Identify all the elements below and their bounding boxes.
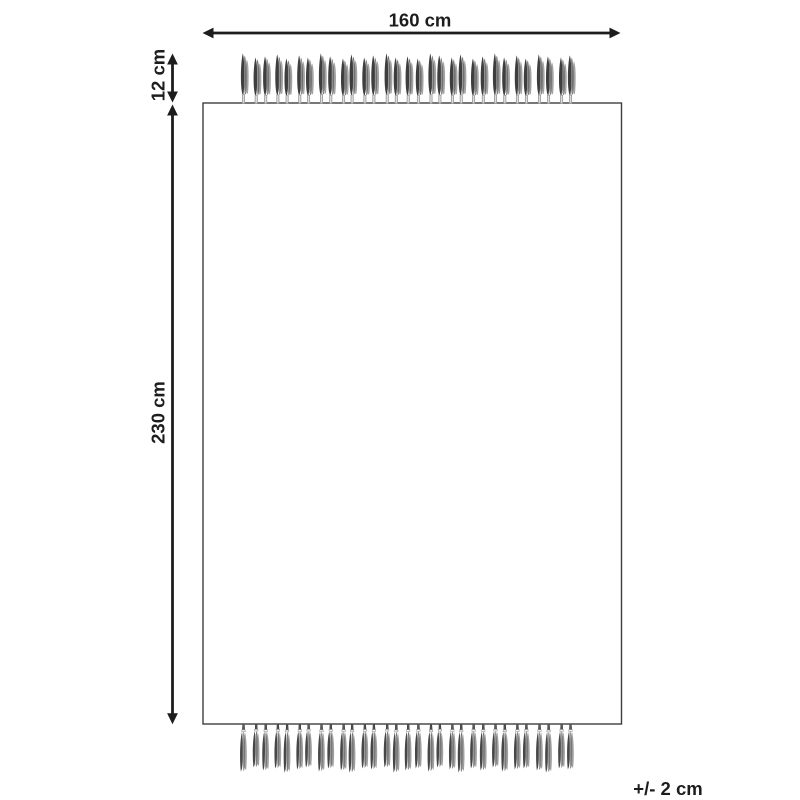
svg-text:+/- 2 cm: +/- 2 cm	[633, 778, 702, 799]
svg-text:160 cm: 160 cm	[389, 10, 452, 31]
svg-text:230 cm: 230 cm	[148, 381, 169, 444]
svg-text:12 cm: 12 cm	[148, 49, 169, 101]
